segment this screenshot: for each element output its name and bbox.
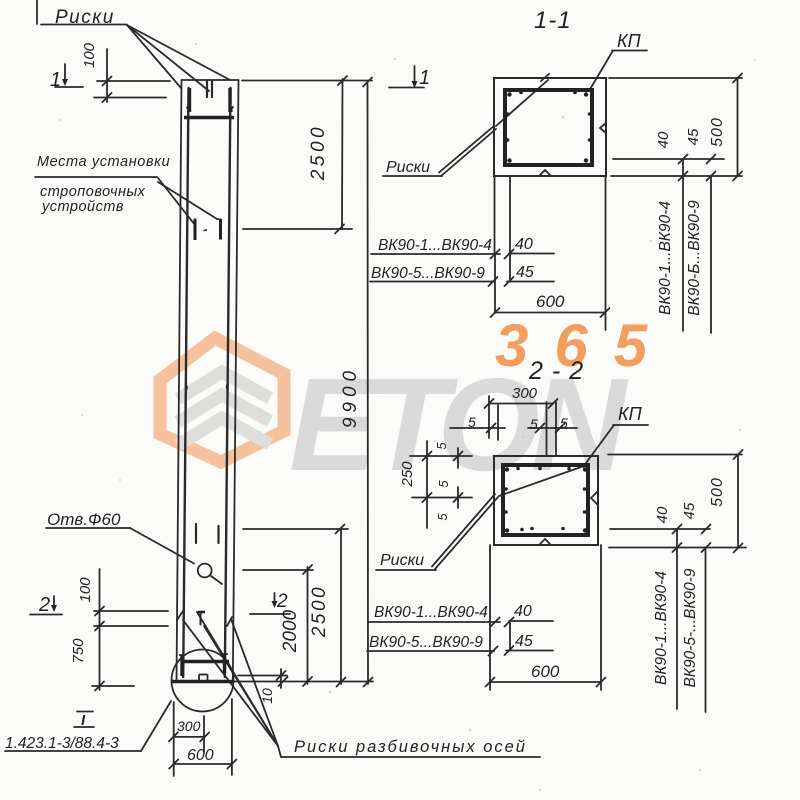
svg-text:ВК90-1...ВК90-4: ВК90-1...ВК90-4 <box>378 237 492 254</box>
svg-text:45: 45 <box>681 502 698 519</box>
svg-text:Риски: Риски <box>55 7 115 28</box>
svg-text:750: 750 <box>70 638 87 664</box>
svg-text:Риски: Риски <box>380 552 424 569</box>
svg-text:ВК90-1...ВК90-4: ВК90-1...ВК90-4 <box>374 604 488 621</box>
svg-text:5: 5 <box>468 414 476 430</box>
svg-text:ВК90-Б...ВК90-9: ВК90-Б...ВК90-9 <box>686 200 703 316</box>
svg-text:ВК90-1...ВК90-4: ВК90-1...ВК90-4 <box>653 571 670 685</box>
svg-text:600: 600 <box>187 747 214 764</box>
svg-text:5: 5 <box>530 416 538 432</box>
svg-text:10: 10 <box>259 688 275 704</box>
svg-text:40: 40 <box>654 506 671 523</box>
svg-text:1.423.1-3/88.4-3: 1.423.1-3/88.4-3 <box>5 735 119 752</box>
svg-text:2000: 2000 <box>280 609 301 653</box>
svg-text:300: 300 <box>177 718 201 734</box>
svg-text:2500: 2500 <box>309 585 330 638</box>
svg-text:ВК90-5...ВК90-9: ВК90-5...ВК90-9 <box>371 265 485 282</box>
svg-text:2: 2 <box>38 594 50 616</box>
svg-text:Риски разбивочных осей: Риски разбивочных осей <box>294 738 527 756</box>
svg-text:2500: 2500 <box>308 124 329 181</box>
svg-text:ВК90-5...ВК90-9: ВК90-5...ВК90-9 <box>369 634 483 651</box>
svg-text:Отв.Ф60: Отв.Ф60 <box>47 510 121 529</box>
svg-text:КП: КП <box>617 31 642 51</box>
svg-text:45: 45 <box>516 264 534 281</box>
svg-text:5: 5 <box>560 415 568 431</box>
svg-text:250: 250 <box>399 461 416 488</box>
svg-text:300: 300 <box>512 385 538 402</box>
svg-text:600: 600 <box>536 292 565 311</box>
svg-text:600: 600 <box>531 662 560 681</box>
svg-text:500: 500 <box>709 117 726 147</box>
svg-text:5: 5 <box>435 513 450 521</box>
svg-text:9900: 9900 <box>340 366 361 428</box>
svg-text:Риски: Риски <box>386 159 430 176</box>
svg-text:ВК90-1...ВК90-4: ВК90-1...ВК90-4 <box>657 201 674 315</box>
svg-text:40: 40 <box>655 131 672 148</box>
svg-text:1: 1 <box>419 67 430 89</box>
svg-text:2: 2 <box>276 591 288 612</box>
svg-text:100: 100 <box>81 42 98 68</box>
svg-text:2-2: 2-2 <box>528 357 592 385</box>
svg-text:100: 100 <box>77 577 94 603</box>
svg-text:45: 45 <box>685 128 702 145</box>
svg-text:45: 45 <box>515 633 533 650</box>
svg-text:Места установки: Места установки <box>37 154 170 170</box>
svg-text:500: 500 <box>709 477 726 507</box>
svg-text:устройств: устройств <box>41 199 124 215</box>
svg-text:5: 5 <box>436 480 451 488</box>
svg-text:1: 1 <box>50 69 61 91</box>
svg-text:1-1: 1-1 <box>534 7 572 34</box>
svg-text:40: 40 <box>515 236 533 253</box>
svg-text:КП: КП <box>618 404 643 424</box>
svg-text:40: 40 <box>514 603 532 620</box>
svg-text:ВК90-5-...ВК90-9: ВК90-5-...ВК90-9 <box>682 568 699 687</box>
svg-text:5: 5 <box>434 442 449 450</box>
svg-text:строповочных: строповочных <box>40 184 146 200</box>
